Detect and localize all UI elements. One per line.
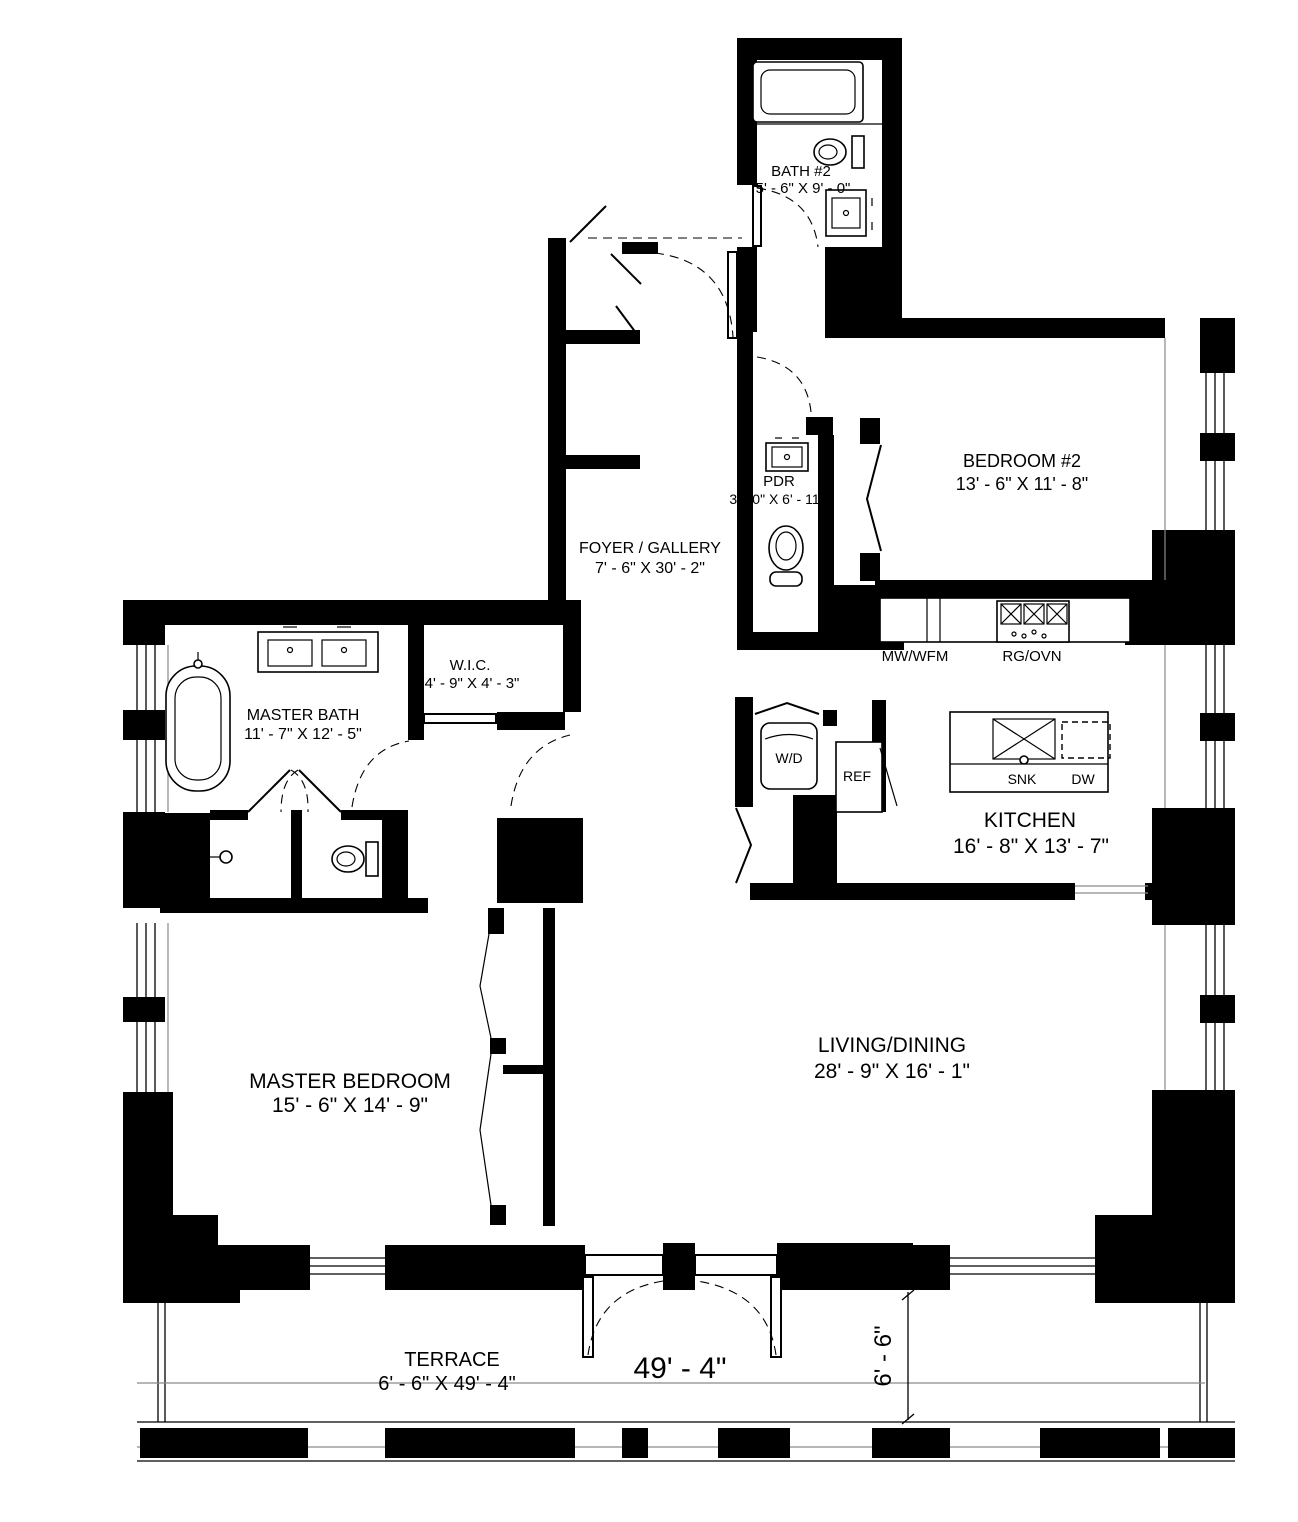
master-bedroom-dims: 15' - 6" X 14' - 9" [272,1094,428,1117]
dw-label: DW [1071,771,1095,787]
snk-label: SNK [1008,771,1037,787]
kitchen-dims: 16' - 8" X 13' - 7" [953,835,1109,858]
pdr-sink-icon [766,438,808,471]
terrace-door-leaf-left [583,1277,593,1357]
living-dining-label: LIVING/DINING [818,1034,966,1057]
wic-label: W.I.C. [450,657,491,674]
foyer-dims: 7' - 6" X 30' - 2" [595,560,705,577]
master-bedroom-label: MASTER BEDROOM [249,1070,451,1093]
terrace-length-dim: 49' - 4" [633,1352,726,1385]
floor-plan-drawing: BATH #2 5' - 6" X 9' - 0" PDR 3' - 0" X … [0,0,1298,1522]
mw-wfm-label: MW/WFM [882,648,949,665]
terrace-door-frame-left [585,1255,663,1275]
rg-ovn-label: RG/OVN [1002,648,1061,665]
double-vanity-icon [258,627,378,672]
master-bath-dims: 11' - 7" X 12' - 5" [244,726,362,743]
terrace-door-frame-right [695,1255,777,1275]
terrace-dims: 6' - 6" X 49' - 4" [378,1373,515,1395]
master-bath-label: MASTER BATH [247,707,360,724]
floor-plan-page: BATH #2 5' - 6" X 9' - 0" PDR 3' - 0" X … [0,0,1298,1522]
wic-pocket-door [424,714,496,723]
wd-label: W/D [775,750,802,766]
bathtub2-icon [753,62,882,124]
entry-door-leaf [728,252,737,338]
bedroom2-label: BEDROOM #2 [963,451,1081,471]
ref-label: REF [843,768,871,784]
range-oven-icon [997,601,1069,642]
pdr-toilet-icon [769,526,803,586]
pdr-label: PDR [763,473,795,490]
pdr-dims: 3' - 0" X 6' - 11" [729,491,824,507]
bedroom2-dims: 13' - 6" X 11' - 8" [956,474,1088,494]
terrace-label: TERRACE [404,1349,500,1371]
terrace-door-leaf-right [771,1277,781,1357]
foyer-label: FOYER / GALLERY [579,540,721,557]
living-dining-dims: 28' - 9" X 16' - 1" [814,1060,970,1083]
bath2-label: BATH #2 [771,163,831,180]
bath2-dims: 5' - 6" X 9' - 0" [756,180,851,197]
wic-dims: 4' - 9" X 4' - 3" [425,675,520,692]
kitchen-label: KITCHEN [984,809,1076,832]
terrace-depth-dim: 6' - 6" [870,1325,897,1386]
